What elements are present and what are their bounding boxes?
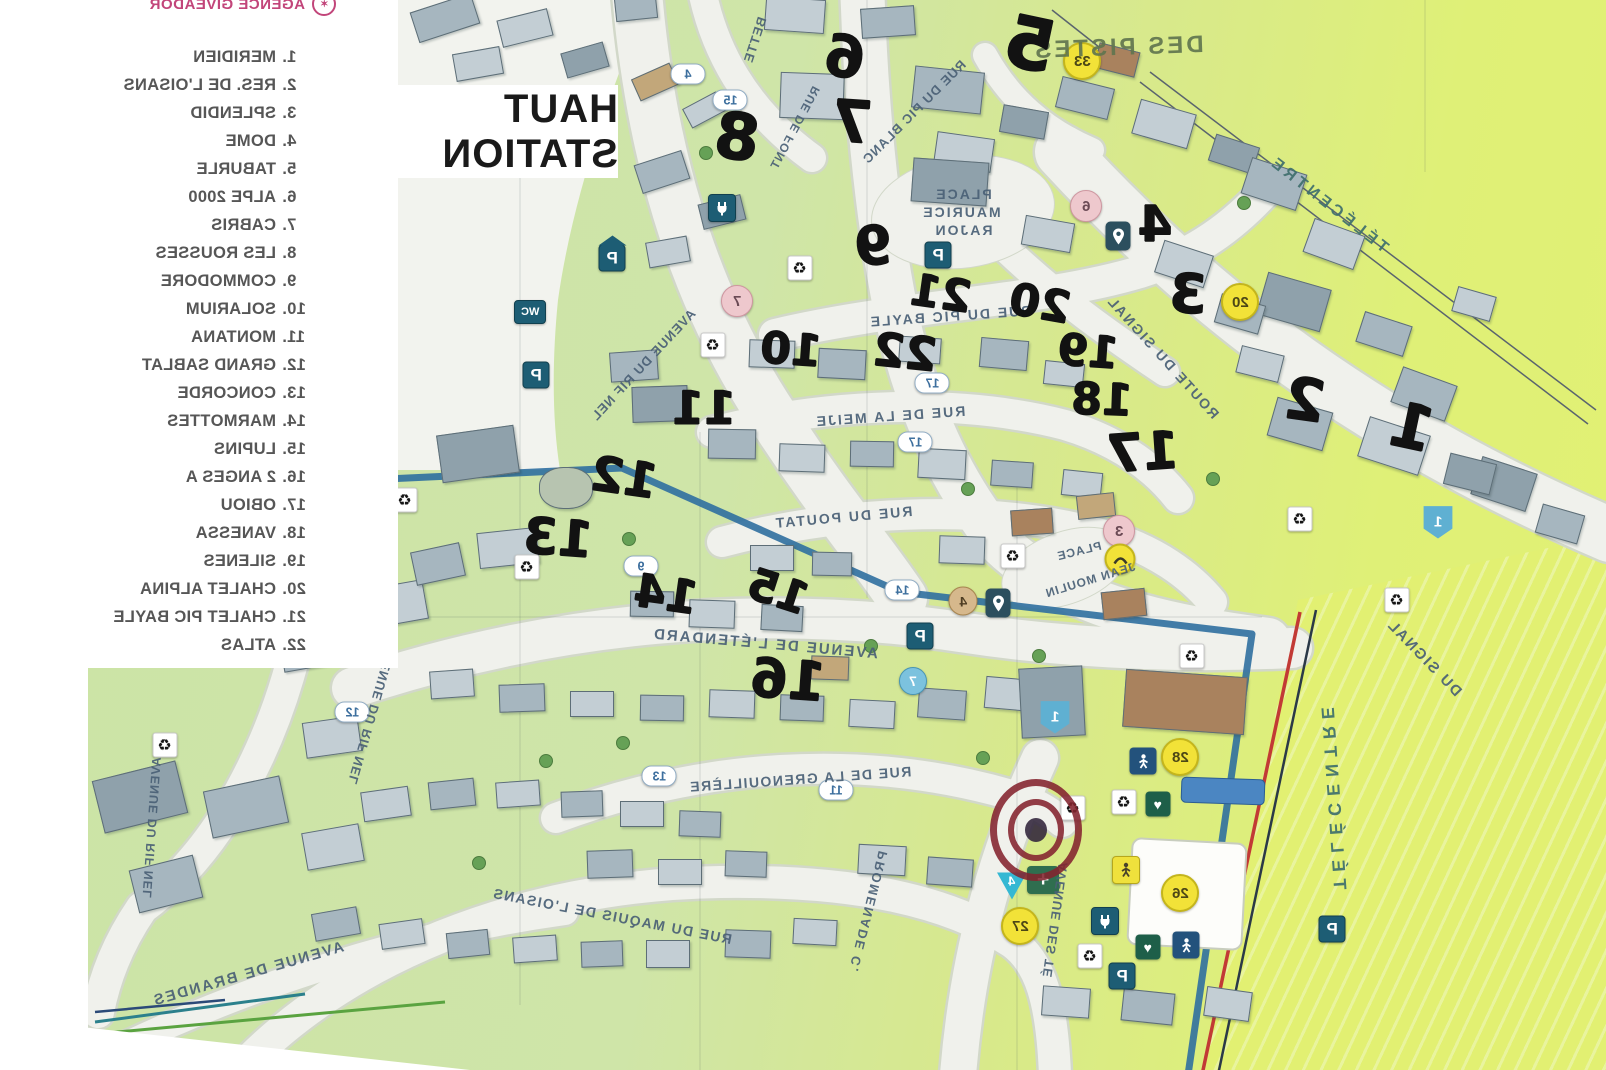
number-badge-blue: 7 bbox=[899, 667, 927, 695]
badge-label: ♻ bbox=[158, 736, 172, 755]
badge-label: P bbox=[606, 248, 617, 268]
handwritten-number: 22 bbox=[870, 322, 939, 382]
badge-label: 4 bbox=[685, 67, 692, 81]
badge-label: 3 bbox=[1115, 523, 1123, 540]
legend-item-number: 2. bbox=[282, 76, 312, 95]
handwritten-number: 16 bbox=[748, 646, 827, 714]
legend-item: 3.SPLENDID bbox=[190, 99, 312, 127]
tree-icon bbox=[622, 532, 636, 546]
building bbox=[640, 695, 684, 722]
ev-charging-icon bbox=[1091, 907, 1119, 935]
number-badge: 17 bbox=[898, 432, 933, 453]
building bbox=[764, 0, 826, 34]
number-badge-tan: 4 bbox=[949, 587, 978, 616]
legend-item-number: 8. bbox=[282, 244, 312, 263]
building bbox=[779, 443, 826, 473]
legend-item-number: 5. bbox=[282, 160, 312, 179]
badge-label: 14 bbox=[895, 583, 909, 597]
legend-item-number: 22. bbox=[282, 636, 312, 655]
building bbox=[561, 790, 604, 817]
badge-label: P bbox=[1326, 919, 1337, 939]
legend-item: 12.GRAND SABLAT bbox=[142, 351, 312, 379]
legend-item-name: VANESSA bbox=[195, 524, 276, 543]
recycling-icon: ♻ bbox=[153, 733, 178, 758]
badge-label: ♻ bbox=[793, 259, 807, 278]
legend-item-name: SOLARIUM bbox=[186, 300, 276, 319]
badge-label: 17 bbox=[908, 435, 922, 449]
legend-item-number: 3. bbox=[282, 104, 312, 123]
building bbox=[446, 929, 490, 959]
legend-item-number: 16. bbox=[282, 468, 312, 487]
building bbox=[428, 778, 477, 811]
street-label: RAJON bbox=[933, 222, 992, 238]
badge-label: 12 bbox=[345, 705, 359, 719]
legend-item-name: LES ROUSSES bbox=[155, 244, 276, 263]
badge-label: ♻ bbox=[1006, 547, 1020, 566]
building bbox=[1041, 985, 1091, 1018]
legend-item-name: OBIOU bbox=[220, 496, 276, 515]
badge-label: 28 bbox=[1172, 749, 1189, 766]
legend-item-name: LUPINS bbox=[214, 440, 276, 459]
number-badge-yellow: 20 bbox=[1221, 283, 1259, 321]
legend-item-number: 18. bbox=[282, 524, 312, 543]
building bbox=[587, 849, 634, 879]
building bbox=[1122, 669, 1248, 735]
building bbox=[939, 535, 986, 565]
legend-item: 17.OBIOU bbox=[220, 491, 312, 519]
badge-label: 27 bbox=[1012, 918, 1029, 935]
handwritten-number: 9 bbox=[851, 213, 895, 280]
badge-label: 6 bbox=[1082, 198, 1090, 215]
building bbox=[570, 691, 614, 717]
street-label: DES PISTES bbox=[1032, 31, 1204, 65]
defibrillator-icon: ♥ bbox=[1146, 792, 1171, 817]
badge-label: ♻ bbox=[398, 491, 412, 510]
building bbox=[539, 467, 593, 509]
legend-item-name: DOME bbox=[225, 132, 276, 151]
building bbox=[848, 699, 895, 729]
legend-item: 20.CHALET ALPINA bbox=[140, 575, 312, 603]
parking-covered-icon: P bbox=[599, 245, 626, 272]
badge-label: 7 bbox=[733, 293, 741, 310]
number-badge-yellow: 26 bbox=[1161, 874, 1199, 912]
parking-icon: P bbox=[907, 623, 934, 650]
building bbox=[990, 460, 1034, 489]
number-badge-pink: 3 bbox=[1103, 515, 1135, 547]
target-marker-core bbox=[1025, 818, 1047, 842]
building bbox=[817, 348, 867, 380]
agency-header: ✶ AGENCE GIVEADOR bbox=[149, 0, 336, 16]
badge-label: ♻ bbox=[1185, 647, 1199, 666]
handwritten-number: 14 bbox=[631, 563, 702, 625]
building bbox=[926, 856, 974, 887]
legend-item-number: 20. bbox=[282, 580, 312, 599]
building bbox=[812, 552, 852, 577]
building bbox=[620, 801, 664, 827]
legend-item: 8.LES ROUSSES bbox=[155, 239, 312, 267]
street-label: PLACE bbox=[934, 186, 991, 202]
legend-item: 1.MERIDIEN bbox=[193, 43, 312, 71]
swimming-pool bbox=[1181, 777, 1266, 806]
legend-item-name: SPLENDID bbox=[190, 104, 276, 123]
handwritten-number: 12 bbox=[587, 446, 661, 511]
tree-icon bbox=[472, 856, 486, 870]
legend-item: 19.SILENES bbox=[203, 547, 312, 575]
legend-item-name: RES. DE L'OISANS bbox=[123, 76, 276, 95]
scan-margin-left bbox=[0, 668, 88, 1070]
legend-item: 18.VANESSA bbox=[195, 519, 312, 547]
legend-item-number: 19. bbox=[282, 552, 312, 571]
handwritten-number: 13 bbox=[521, 507, 594, 570]
building bbox=[581, 940, 624, 967]
handwritten-number: 4 bbox=[1138, 195, 1173, 253]
playground-icon bbox=[1112, 856, 1140, 884]
legend-item-name: 2 ANGES A bbox=[186, 468, 276, 487]
number-badge-yellow: 27 bbox=[1001, 907, 1039, 945]
building bbox=[679, 810, 722, 837]
legend-item-name: MARMOTTES bbox=[167, 412, 276, 431]
map-title-box: HAUT STATION bbox=[320, 85, 618, 178]
building bbox=[646, 940, 690, 968]
legend-item-number: 9. bbox=[282, 272, 312, 291]
badge-label: 1 bbox=[1051, 709, 1059, 726]
legend-item: 7.CABRIS bbox=[211, 211, 312, 239]
legend-item: 2.RES. DE L'OISANS bbox=[123, 71, 312, 99]
tree-icon bbox=[539, 754, 553, 768]
tree-icon bbox=[1237, 196, 1251, 210]
number-badge-pink: 7 bbox=[721, 285, 753, 317]
badge-label: ♻ bbox=[1390, 591, 1404, 610]
tree-icon bbox=[616, 736, 630, 750]
handwritten-number: 17 bbox=[1105, 421, 1181, 486]
parking-icon: P bbox=[925, 242, 952, 269]
legend-item-number: 15. bbox=[282, 440, 312, 459]
badge-label: 1 bbox=[1434, 514, 1442, 531]
location-pin-icon bbox=[986, 589, 1011, 618]
number-badge: 13 bbox=[642, 766, 677, 787]
badge-label: 7 bbox=[909, 673, 917, 689]
number-badge-yellow: 28 bbox=[1161, 738, 1199, 776]
badge-label: 4 bbox=[959, 593, 967, 609]
building bbox=[1203, 986, 1253, 1022]
recycling-icon: ♻ bbox=[1112, 790, 1137, 815]
legend-item-number: 12. bbox=[282, 356, 312, 375]
handwritten-number: 11 bbox=[672, 381, 736, 435]
recycling-icon: ♻ bbox=[1078, 944, 1103, 969]
number-badge: 4 bbox=[671, 64, 706, 85]
legend-item-number: 14. bbox=[282, 412, 312, 431]
legend-item-number: 13. bbox=[282, 384, 312, 403]
recycling-icon: ♻ bbox=[788, 256, 813, 281]
legend-item-number: 11. bbox=[282, 328, 312, 347]
number-badge: 14 bbox=[885, 580, 920, 601]
building bbox=[917, 448, 967, 480]
legend-item: 15.LUPINS bbox=[214, 435, 312, 463]
building bbox=[1120, 988, 1175, 1025]
recycling-icon: ♻ bbox=[1288, 507, 1313, 532]
legend-item-name: COMMODORE bbox=[161, 272, 276, 291]
legend-item: 6.ALPE 2000 bbox=[188, 183, 312, 211]
scanned-resort-map: PPPPPPWC♻♻♻♻♻♻♻♻♻♻♻♻♥♥+41141517171491211… bbox=[0, 0, 1606, 1070]
legend-item-name: ATLAS bbox=[221, 636, 276, 655]
legend-item-number: 10. bbox=[282, 300, 312, 319]
building bbox=[979, 337, 1029, 371]
parking-icon: P bbox=[523, 362, 550, 389]
badge-label: 13 bbox=[652, 769, 666, 783]
building bbox=[792, 918, 837, 946]
target-marker bbox=[990, 779, 1082, 881]
badge-label: ♻ bbox=[1117, 793, 1131, 812]
badge-label: 20 bbox=[1232, 294, 1249, 311]
building bbox=[1010, 508, 1054, 537]
building bbox=[658, 859, 702, 885]
badge-label: ♻ bbox=[1293, 510, 1307, 529]
legend-item: 21.CHALET PIC BAYLE bbox=[113, 603, 312, 631]
toilets-icon: WC bbox=[514, 300, 546, 324]
badge-label: 26 bbox=[1172, 885, 1189, 902]
legend-item: 5.TABURLE bbox=[196, 155, 312, 183]
legend-item-name: MERIDIEN bbox=[193, 48, 276, 67]
parking-icon: P bbox=[1109, 963, 1136, 990]
badge-label: 4 bbox=[1008, 874, 1015, 889]
legend-item-number: 4. bbox=[282, 132, 312, 151]
handwritten-number: 21 bbox=[907, 264, 975, 323]
recycling-icon: ♻ bbox=[1001, 544, 1026, 569]
building bbox=[512, 934, 558, 963]
legend-item: 9.COMMODORE bbox=[161, 267, 312, 295]
badge-label: P bbox=[1116, 966, 1127, 986]
agency-name: AGENCE GIVEADOR bbox=[149, 0, 305, 13]
legend-item-name: ALPE 2000 bbox=[188, 188, 276, 207]
handwritten-number: 19 bbox=[1056, 324, 1121, 379]
building bbox=[429, 668, 475, 699]
map-title: HAUT STATION bbox=[320, 87, 618, 177]
building bbox=[499, 683, 546, 713]
legend-item-number: 7. bbox=[282, 216, 312, 235]
building bbox=[1101, 588, 1148, 620]
legend-item-number: 21. bbox=[282, 608, 312, 627]
target-marker-ring bbox=[1008, 799, 1064, 861]
building bbox=[850, 441, 894, 468]
legend-item: 22.ATLAS bbox=[221, 631, 312, 659]
building bbox=[495, 779, 541, 808]
legend-item-name: GRAND SABLAT bbox=[142, 356, 276, 375]
handwritten-number: 7 bbox=[829, 87, 874, 158]
agency-logo-icon: ✶ bbox=[312, 0, 336, 16]
recycling-icon: ♻ bbox=[1180, 644, 1205, 669]
legend-item-name: CONCORDE bbox=[177, 384, 276, 403]
legend-item-name: TABURLE bbox=[196, 160, 276, 179]
legend-item-number: 1. bbox=[282, 48, 312, 67]
badge-label: 11 bbox=[829, 783, 842, 797]
badge-label: ♥ bbox=[1144, 939, 1152, 955]
handwritten-number: 3 bbox=[1167, 261, 1209, 326]
handwritten-number: 10 bbox=[759, 322, 824, 377]
street-label: MAURICE bbox=[921, 204, 1000, 220]
tree-icon bbox=[961, 482, 975, 496]
tree-icon bbox=[976, 751, 990, 765]
tree-icon bbox=[1032, 649, 1046, 663]
location-pin-icon bbox=[1106, 222, 1131, 251]
legend-item-number: 17. bbox=[282, 496, 312, 515]
badge-label: ♥ bbox=[1154, 796, 1162, 812]
waterslide-icon bbox=[1130, 748, 1157, 775]
tree-icon bbox=[1206, 472, 1220, 486]
recycling-icon: ♻ bbox=[1385, 588, 1410, 613]
parking-icon: P bbox=[1319, 916, 1346, 943]
ev-charging-icon bbox=[708, 194, 736, 222]
legend-item-name: MONTANA bbox=[191, 328, 276, 347]
number-badge-pink: 6 bbox=[1070, 190, 1102, 222]
legend-item-number: 6. bbox=[282, 188, 312, 207]
legend-item-name: SILENES bbox=[203, 552, 276, 571]
legend-item-name: CHALET PIC BAYLE bbox=[113, 608, 276, 627]
legend-item: 4.DOME bbox=[225, 127, 312, 155]
badge-label: WC bbox=[521, 306, 539, 318]
building bbox=[1076, 492, 1116, 520]
badge-label: P bbox=[530, 365, 541, 385]
badge-label: P bbox=[914, 626, 925, 646]
badge-label: ♻ bbox=[1083, 947, 1097, 966]
waterslide-icon bbox=[1173, 932, 1200, 959]
badge-label: P bbox=[932, 245, 943, 265]
legend-item-name: CHALET ALPINA bbox=[140, 580, 276, 599]
building bbox=[917, 687, 967, 720]
handwritten-number: 18 bbox=[1071, 373, 1134, 426]
legend-item: 11.MONTANA bbox=[191, 323, 312, 351]
legend-item: 14.MARMOTTES bbox=[167, 407, 312, 435]
legend-item: 10.SOLARIUM bbox=[186, 295, 312, 323]
defibrillator-icon: ♥ bbox=[1136, 935, 1161, 960]
recycling-icon: ♻ bbox=[701, 333, 726, 358]
legend-item: 13.CONCORDE bbox=[177, 379, 312, 407]
badge-label: ♻ bbox=[706, 336, 720, 355]
building bbox=[725, 850, 768, 877]
legend-item: 16.2 ANGES A bbox=[186, 463, 312, 491]
legend-item-name: CABRIS bbox=[211, 216, 276, 235]
